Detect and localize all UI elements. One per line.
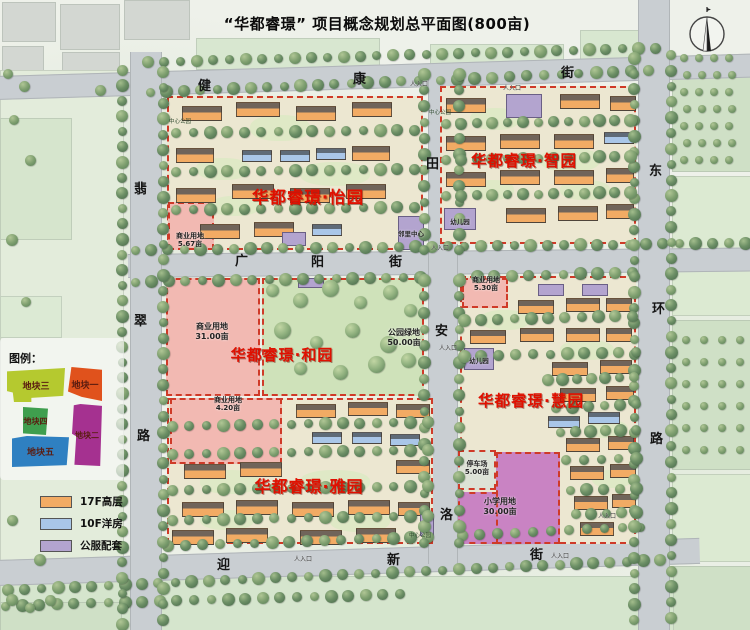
tree-icon	[666, 487, 677, 498]
tree-icon	[368, 356, 385, 373]
tree-icon	[654, 554, 666, 566]
tree-icon	[485, 47, 497, 59]
tree-icon	[176, 57, 185, 66]
building-17f-highrise	[176, 148, 214, 163]
tree-icon	[6, 234, 18, 246]
street-label-donghuan-2: 环	[652, 303, 665, 316]
tree-icon	[700, 336, 708, 344]
tree-icon	[354, 418, 365, 429]
tree-icon	[217, 513, 230, 526]
tree-icon	[203, 575, 215, 587]
tree-icon	[337, 445, 349, 457]
tree-icon	[700, 358, 708, 366]
tree-icon	[116, 187, 128, 199]
tree-icon	[158, 176, 169, 187]
tree-icon	[591, 267, 604, 280]
tree-icon	[159, 161, 168, 170]
tree-icon	[454, 245, 464, 255]
building-10f-flat	[352, 432, 382, 444]
tree-icon	[475, 314, 487, 326]
tree-icon	[158, 208, 168, 218]
tree-icon	[117, 603, 128, 614]
tree-icon	[683, 105, 691, 113]
tree-icon	[541, 270, 551, 280]
tree-icon	[666, 566, 677, 577]
tree-icon	[171, 167, 181, 177]
tree-icon	[570, 557, 583, 570]
tree-icon	[418, 356, 431, 369]
tree-icon	[593, 114, 606, 127]
tree-icon	[222, 593, 235, 606]
tree-icon	[265, 275, 274, 284]
field-block	[60, 4, 120, 50]
tree-icon	[117, 218, 128, 229]
building-10f-flat	[312, 224, 342, 236]
tree-icon	[250, 539, 259, 548]
tree-icon	[422, 416, 434, 428]
tree-icon	[383, 285, 398, 300]
tree-icon	[736, 402, 744, 410]
tree-icon	[293, 293, 308, 308]
legend-plot-5-label: 地块五	[27, 445, 54, 458]
page-title: “华都睿璟” 项目概念规划总平面图(800亩)	[224, 13, 530, 34]
tree-icon	[146, 88, 155, 97]
tree-icon	[695, 156, 703, 164]
tree-icon	[700, 402, 708, 410]
tree-icon	[323, 53, 332, 62]
tree-icon	[455, 190, 467, 202]
tree-icon	[628, 52, 641, 65]
field-block	[0, 296, 62, 338]
tree-icon	[418, 307, 430, 319]
tree-icon	[257, 592, 269, 604]
tree-icon	[204, 203, 217, 216]
tree-icon	[184, 421, 194, 431]
tree-icon	[628, 520, 641, 533]
tree-icon	[9, 115, 19, 125]
tree-icon	[157, 223, 169, 235]
tree-icon	[593, 186, 606, 199]
tree-icon	[212, 244, 223, 255]
tree-icon	[472, 190, 482, 200]
tree-icon	[454, 374, 464, 384]
tree-icon	[666, 50, 676, 60]
tree-icon	[615, 484, 625, 494]
tree-icon	[667, 82, 676, 91]
tree-icon	[157, 112, 170, 125]
tree-icon	[627, 311, 638, 322]
tree-icon	[474, 529, 485, 540]
tree-icon	[600, 524, 609, 533]
tree-icon	[159, 57, 169, 67]
tree-icon	[333, 365, 348, 380]
tree-icon	[579, 188, 590, 199]
legend-plot-4: 地块四	[23, 407, 48, 435]
tree-icon	[718, 424, 726, 432]
building-17f-highrise	[558, 206, 598, 221]
tree-icon	[204, 165, 217, 178]
tree-icon	[629, 69, 639, 79]
tree-icon	[158, 333, 169, 344]
street-label-yingxin-2: 新	[387, 554, 400, 567]
tree-icon	[454, 85, 464, 95]
building-17f-highrise	[500, 134, 540, 149]
tree-icon	[564, 189, 573, 198]
tree-icon	[665, 346, 678, 359]
tree-icon	[566, 486, 575, 495]
tree-icon	[306, 52, 317, 63]
tree-icon	[542, 312, 554, 324]
tree-icon	[698, 105, 706, 113]
project-label-yiyuan: 华都睿璟·怡园	[252, 184, 364, 208]
tree-icon	[341, 165, 351, 175]
tree-icon	[379, 76, 391, 88]
tree-icon	[570, 426, 581, 437]
tree-icon	[628, 598, 641, 611]
tree-icon	[630, 100, 639, 109]
tree-icon	[503, 190, 512, 199]
tree-icon	[274, 322, 291, 339]
project-label-yayuan: 华都睿璟·雅园	[254, 473, 363, 497]
tree-icon	[230, 274, 242, 286]
tree-icon	[354, 512, 365, 523]
legend-swatch-public	[40, 540, 72, 552]
tree-icon	[561, 455, 571, 465]
tree-icon	[372, 446, 382, 456]
tree-icon	[700, 446, 708, 454]
field-block	[0, 118, 72, 240]
tree-icon	[157, 582, 170, 595]
tree-icon	[707, 238, 718, 249]
tree-icon	[337, 511, 349, 523]
tree-icon	[629, 225, 639, 235]
tree-icon	[19, 584, 30, 595]
label-entrance-5: 人入口	[294, 554, 312, 563]
tree-icon	[718, 446, 726, 454]
tree-icon	[718, 336, 726, 344]
tree-icon	[454, 422, 465, 433]
legend-title: 图例：	[9, 350, 42, 366]
tree-icon	[396, 76, 406, 86]
tree-icon	[266, 284, 279, 297]
tree-icon	[631, 347, 641, 357]
street-label-jiankang-3: 街	[561, 67, 574, 80]
tree-icon	[189, 128, 198, 137]
tree-icon	[534, 45, 547, 58]
tree-icon	[624, 150, 637, 163]
tree-icon	[158, 98, 169, 109]
tree-icon	[157, 504, 170, 517]
tree-icon	[546, 526, 556, 536]
tree-icon	[486, 72, 498, 84]
tree-icon	[158, 411, 169, 422]
building-public-facility	[582, 284, 608, 296]
tree-icon	[256, 127, 266, 137]
tree-icon	[118, 127, 127, 136]
tree-icon	[583, 401, 594, 412]
tree-icon	[374, 163, 387, 176]
tree-icon	[689, 237, 702, 250]
tree-icon	[341, 126, 351, 136]
tree-icon	[419, 538, 429, 548]
tree-icon	[587, 557, 599, 569]
tree-icon	[458, 314, 471, 327]
tree-icon	[419, 456, 429, 466]
tree-icon	[584, 425, 597, 438]
tree-icon	[184, 515, 194, 525]
tree-icon	[252, 447, 263, 458]
tree-icon	[297, 273, 309, 285]
building-17f-highrise	[236, 102, 280, 117]
tree-icon	[116, 264, 128, 276]
label-commercial-nw: 商业用地5.67亩	[176, 232, 204, 249]
tree-icon	[454, 456, 464, 466]
tree-icon	[718, 358, 726, 366]
street-label-guangyang-1: 广	[235, 255, 248, 268]
tree-icon	[342, 590, 354, 602]
tree-icon	[377, 242, 388, 253]
building-17f-highrise	[566, 328, 600, 342]
tree-icon	[555, 560, 565, 570]
tree-icon	[486, 117, 498, 129]
tree-icon	[198, 276, 207, 285]
tree-icon	[118, 589, 127, 598]
tree-icon	[682, 380, 690, 388]
tree-icon	[118, 281, 127, 290]
tree-icon	[624, 114, 637, 127]
tree-icon	[564, 117, 573, 126]
tree-icon	[419, 133, 430, 144]
tree-icon	[736, 336, 744, 344]
tree-icon	[713, 139, 721, 147]
tree-icon	[374, 201, 387, 214]
tree-icon	[167, 515, 178, 526]
street-label-feicui-1: 翡	[134, 183, 147, 196]
tree-icon	[682, 424, 690, 432]
tree-icon	[189, 205, 198, 214]
tree-icon	[453, 100, 465, 112]
tree-icon	[171, 205, 181, 215]
tree-icon	[227, 82, 240, 95]
tree-icon	[189, 167, 198, 176]
tree-icon	[287, 420, 296, 429]
tree-icon	[525, 312, 538, 325]
tree-icon	[667, 160, 676, 169]
building-17f-highrise	[560, 94, 600, 109]
tree-icon	[116, 618, 129, 630]
tree-icon	[700, 424, 708, 432]
tree-icon	[492, 314, 503, 325]
building-17f-highrise	[570, 466, 604, 480]
tree-icon	[665, 580, 678, 593]
tree-icon	[213, 85, 222, 94]
tree-icon	[337, 417, 349, 429]
tree-icon	[418, 180, 430, 192]
tree-icon	[117, 250, 127, 260]
building-17f-highrise	[520, 328, 554, 342]
tree-icon	[359, 126, 368, 135]
tree-icon	[710, 88, 718, 96]
tree-icon	[117, 173, 127, 183]
tree-icon	[609, 187, 620, 198]
tree-icon	[556, 373, 569, 386]
building-17f-highrise	[348, 402, 388, 416]
tree-icon	[580, 483, 593, 496]
tree-icon	[739, 237, 750, 250]
tree-icon	[665, 456, 677, 468]
building-17f-highrise	[566, 438, 600, 452]
tree-icon	[725, 88, 733, 96]
tree-icon	[454, 133, 465, 144]
tree-icon	[117, 295, 128, 306]
tree-icon	[239, 127, 250, 138]
tree-icon	[394, 242, 404, 252]
building-public-facility	[506, 94, 542, 118]
tree-icon	[256, 166, 266, 176]
tree-icon	[157, 66, 169, 78]
tree-icon	[322, 280, 339, 297]
label-school: 小学用地30.00亩	[483, 497, 516, 516]
tree-icon	[34, 554, 46, 566]
tree-icon	[372, 534, 381, 543]
tree-icon	[528, 527, 538, 537]
tree-icon	[436, 76, 445, 85]
tree-icon	[665, 267, 678, 280]
tree-icon	[6, 594, 18, 606]
tree-icon	[310, 592, 319, 601]
street-label-feicui-2: 翠	[134, 315, 147, 328]
tree-icon	[503, 118, 512, 127]
tree-icon	[117, 141, 128, 152]
tree-icon	[404, 304, 417, 317]
tree-icon	[312, 79, 324, 91]
tree-icon	[616, 507, 627, 518]
tree-icon	[158, 130, 168, 140]
tree-icon	[736, 358, 744, 366]
tree-icon	[409, 164, 420, 175]
label-commercial-sw: 商业用地4.20亩	[214, 396, 242, 413]
tree-icon	[618, 523, 627, 532]
tree-icon	[422, 480, 434, 492]
tree-icon	[667, 473, 676, 482]
tree-icon	[202, 515, 211, 524]
building-17f-highrise	[176, 188, 216, 203]
tree-icon	[630, 569, 639, 578]
tree-icon	[667, 395, 676, 404]
tree-icon	[131, 278, 140, 287]
label-commercial-w: 商业用地31.00亩	[195, 322, 228, 341]
tree-icon	[680, 88, 688, 96]
tree-icon	[158, 568, 169, 579]
tree-icon	[252, 513, 263, 524]
tree-icon	[171, 578, 180, 587]
tree-icon	[600, 401, 609, 410]
tree-icon	[695, 88, 703, 96]
tree-icon	[628, 130, 641, 143]
tree-icon	[116, 110, 128, 122]
building-17f-highrise	[554, 170, 594, 185]
tree-icon	[631, 399, 641, 409]
tree-icon	[167, 449, 178, 460]
tree-icon	[25, 155, 36, 166]
tree-icon	[159, 553, 168, 562]
tree-icon	[355, 51, 366, 62]
building-17f-highrise	[226, 528, 268, 543]
tree-icon	[401, 353, 416, 368]
tree-icon	[372, 418, 382, 428]
tree-icon	[404, 566, 415, 577]
tree-icon	[438, 566, 447, 575]
label-entrance-1: 人入口	[410, 79, 428, 88]
tree-icon	[207, 595, 216, 604]
street-label-yingxin-1: 迎	[217, 559, 230, 572]
tree-icon	[486, 189, 498, 201]
tree-icon	[245, 82, 257, 94]
tree-icon	[629, 271, 640, 282]
street-label-donghuan-1: 东	[649, 165, 662, 178]
building-17f-highrise	[500, 170, 540, 185]
tree-icon	[579, 455, 589, 465]
building-17f-highrise	[446, 98, 486, 113]
tree-icon	[420, 325, 429, 334]
tree-icon	[629, 537, 639, 547]
tree-icon	[539, 70, 549, 80]
tree-icon	[157, 614, 169, 626]
building-10f-flat	[390, 434, 420, 446]
tree-icon	[682, 446, 690, 454]
building-17f-highrise	[352, 102, 392, 117]
tree-icon	[454, 165, 464, 175]
tree-icon	[283, 536, 295, 548]
tree-icon	[337, 569, 348, 580]
tree-icon	[665, 424, 678, 437]
tree-icon	[455, 407, 464, 416]
legend-plot-5: 地块五	[12, 436, 69, 467]
tree-icon	[502, 47, 513, 58]
tree-icon	[597, 455, 606, 464]
tree-icon	[506, 270, 518, 282]
legend-label-public: 公服配套	[80, 538, 122, 553]
street-label-jiankang-1: 健	[198, 80, 211, 93]
tree-icon	[360, 589, 372, 601]
tree-icon	[564, 525, 574, 535]
site-plan-map: “华都睿璟” 项目概念规划总平面图(800亩) 健 康 街 广 阳 街 迎 新 …	[0, 0, 750, 630]
tree-icon	[420, 198, 429, 207]
tree-icon	[710, 122, 718, 130]
tree-icon	[422, 444, 434, 456]
tree-icon	[590, 66, 603, 79]
tree-icon	[157, 269, 170, 282]
tree-icon	[700, 380, 708, 388]
label-entrance-2: 人入口	[503, 83, 521, 92]
tree-icon	[371, 569, 380, 578]
field-block	[2, 2, 56, 42]
tree-icon	[609, 151, 620, 162]
street-label-jiankang-2: 康	[353, 73, 366, 86]
tree-icon	[274, 127, 283, 136]
tree-icon	[582, 524, 592, 534]
tree-icon	[607, 66, 619, 78]
tree-icon	[472, 118, 482, 128]
project-label-heyuan: 华都睿璟·和园	[231, 344, 334, 365]
tree-icon	[683, 71, 691, 79]
tree-icon	[280, 82, 289, 91]
tree-icon	[666, 253, 677, 264]
tree-icon	[159, 396, 168, 405]
tree-icon	[736, 424, 744, 432]
tree-icon	[455, 489, 464, 498]
tree-icon	[159, 240, 168, 249]
